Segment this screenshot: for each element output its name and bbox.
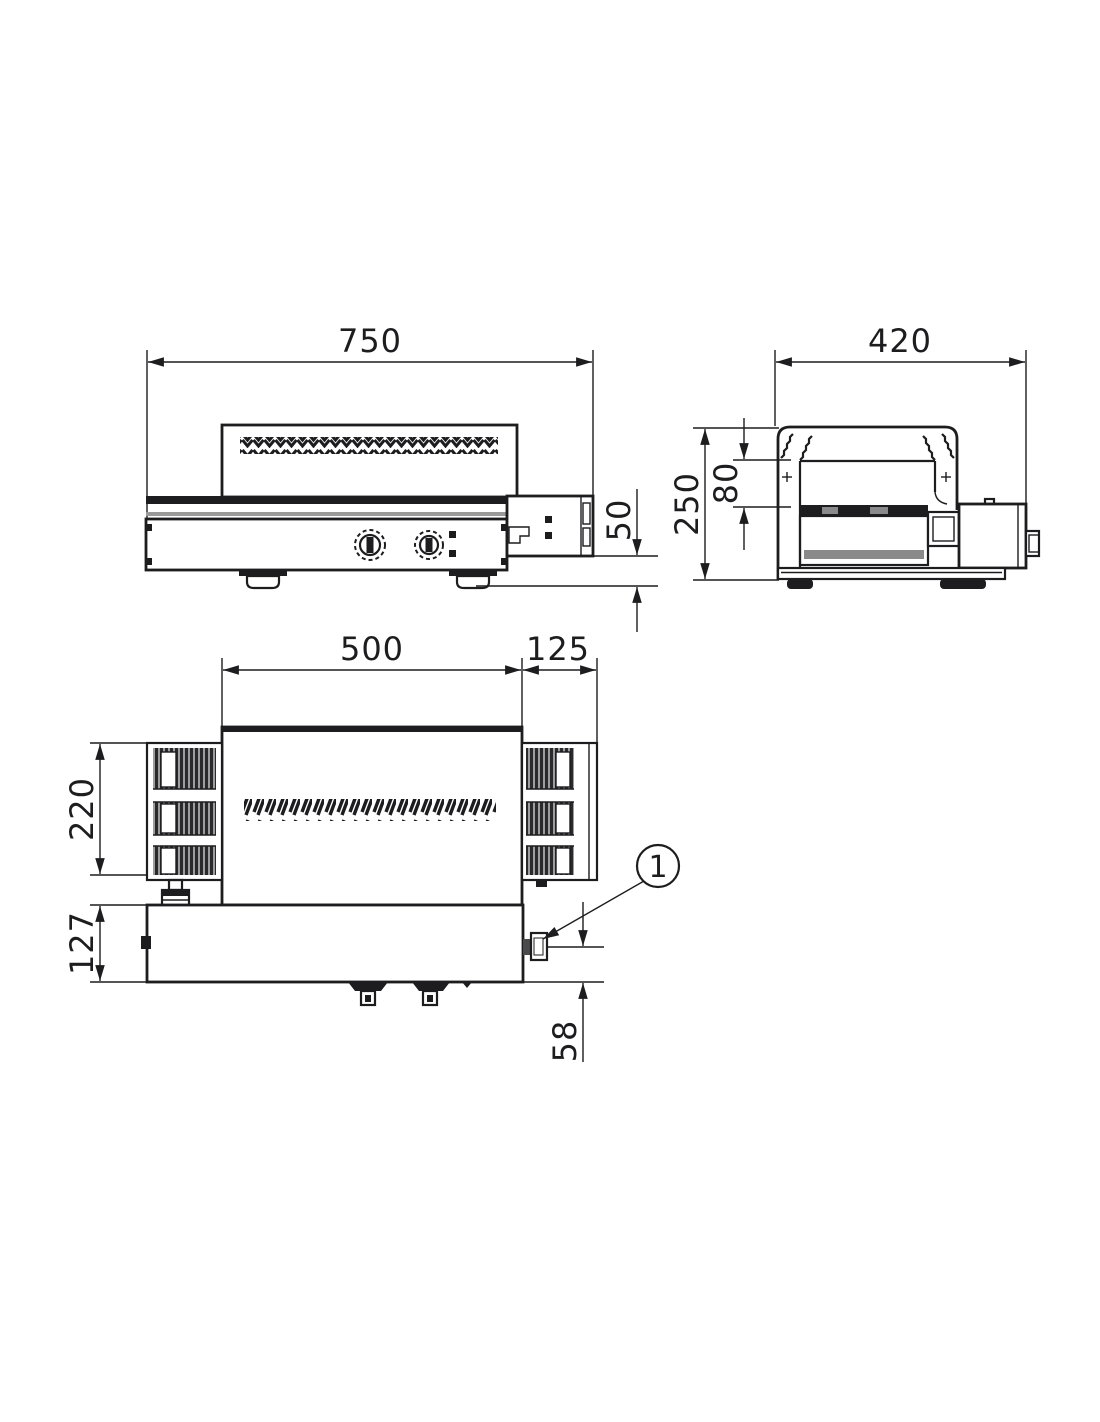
coupling-curve	[935, 492, 947, 504]
top-dim-belt-width: 220	[63, 743, 147, 875]
dim-80-label: 80	[707, 462, 745, 505]
rack-teeth	[781, 434, 793, 458]
front-hood	[222, 425, 517, 497]
front-hood-vents	[240, 437, 498, 454]
side-foot-left	[787, 579, 813, 589]
top-dim-outfeed-length: 125	[523, 630, 597, 742]
dim-127-label: 127	[63, 911, 101, 975]
motor-bump	[985, 499, 994, 504]
front-body-nub	[146, 558, 152, 565]
dim-50-label: 50	[600, 499, 638, 542]
front-dim-overall-width: 750	[147, 322, 593, 518]
top-view: 500 125	[63, 630, 679, 1062]
outfeed-roller-block	[522, 743, 597, 887]
dim-750-label: 750	[338, 322, 402, 360]
rack-teeth	[923, 436, 935, 460]
cable-gland	[523, 933, 547, 960]
infeed-roller-block	[147, 743, 222, 880]
top-knob-2	[412, 982, 450, 1005]
panel-side-connector	[141, 936, 151, 949]
side-belt-gap	[870, 507, 888, 514]
top-dim-tunnel-length: 500	[222, 630, 522, 726]
dim-58-label: 58	[546, 1020, 584, 1063]
dim-125-label: 125	[526, 630, 590, 668]
front-body-nub	[146, 524, 152, 531]
panel-screw	[449, 531, 456, 538]
technical-drawing-sheet: 750	[0, 0, 1100, 1422]
side-foot-right	[940, 579, 986, 589]
side-dim-overall-depth: 420	[775, 322, 1026, 504]
drawing-canvas: 750	[0, 0, 1100, 1422]
front-foot-left	[239, 570, 287, 588]
side-base	[778, 568, 1005, 579]
side-view: 420 250 80	[668, 322, 1039, 589]
top-dim-gland-offset: 58	[523, 902, 604, 1062]
post-screw-right	[941, 472, 951, 482]
side-body-band	[804, 550, 924, 559]
front-body-nub	[501, 558, 507, 565]
top-knob-1	[348, 982, 388, 1005]
dim-420-label: 420	[868, 322, 932, 360]
side-belt-gap	[822, 507, 838, 514]
top-hood-vents	[244, 799, 496, 821]
dim-250-label: 250	[668, 472, 706, 536]
side-belt	[800, 505, 928, 516]
balloon-1-label: 1	[648, 850, 667, 885]
post-screw-left	[782, 472, 792, 482]
top-dim-panel-depth: 127	[63, 905, 147, 982]
panel-screw	[449, 550, 456, 557]
dim-500-label: 500	[340, 630, 404, 668]
rack-teeth	[942, 434, 954, 458]
rack-teeth	[800, 436, 812, 460]
top-control-panel	[147, 905, 523, 982]
panel-notch	[462, 982, 472, 988]
front-body	[146, 519, 507, 570]
top-hood-edge	[222, 727, 522, 732]
front-belt-line	[146, 512, 507, 516]
front-outfeed-extension	[507, 496, 593, 556]
front-deck-band	[146, 496, 507, 504]
dim-220-label: 220	[63, 777, 101, 841]
front-view: 750	[146, 322, 658, 632]
motor-housing	[959, 504, 1026, 568]
